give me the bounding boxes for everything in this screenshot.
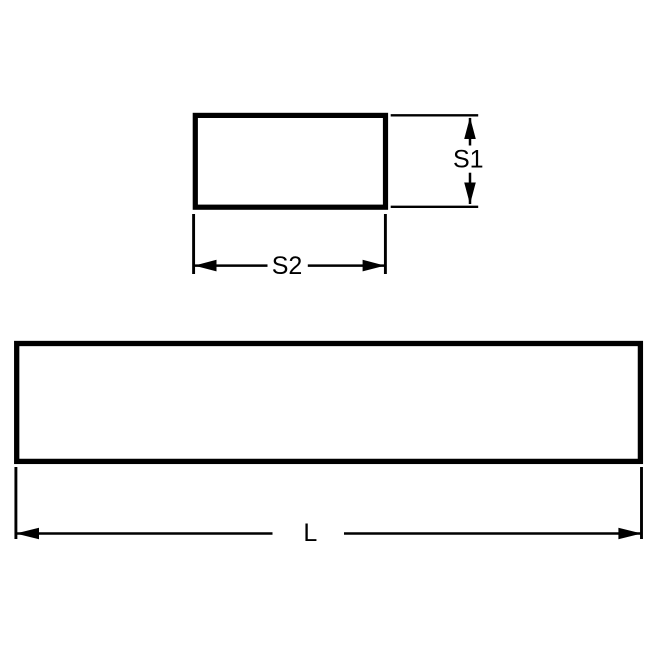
svg-text:L: L: [303, 519, 317, 547]
svg-text:S1: S1: [453, 146, 484, 174]
svg-text:S2: S2: [272, 252, 303, 280]
